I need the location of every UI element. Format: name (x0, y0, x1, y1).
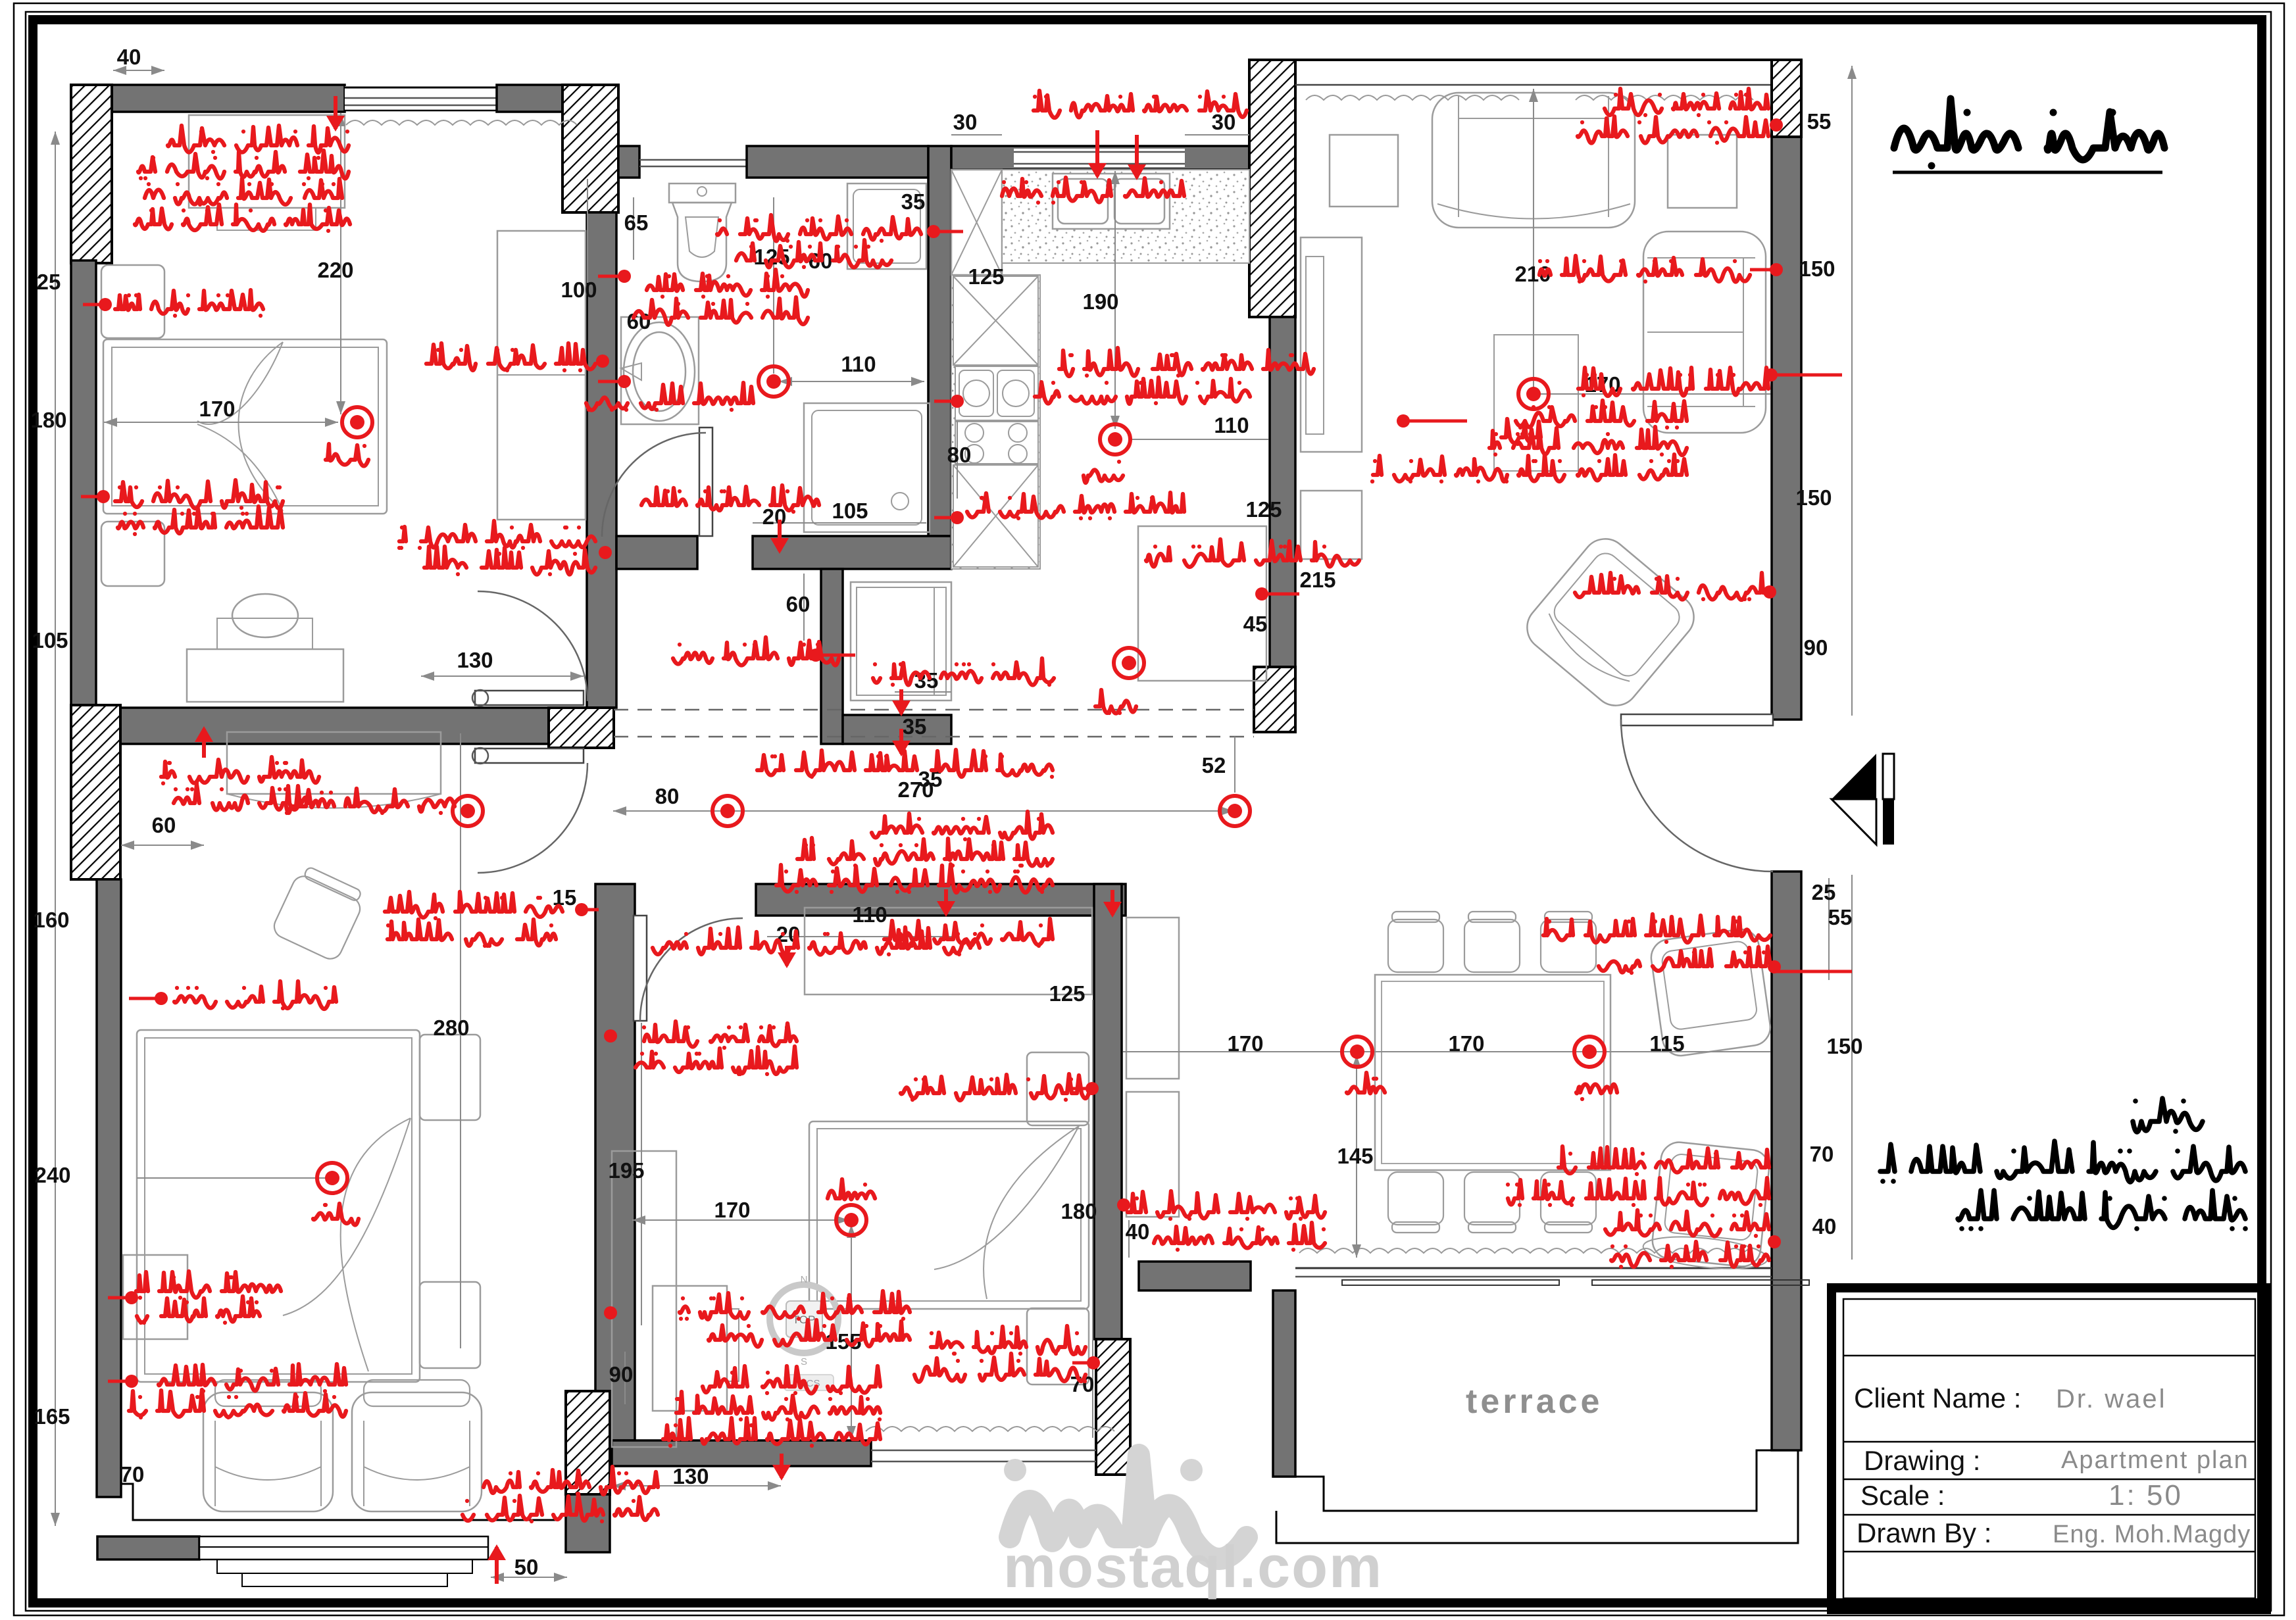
svg-text:80: 80 (655, 784, 680, 808)
svg-text:25: 25 (37, 270, 61, 294)
svg-text:40: 40 (117, 45, 141, 69)
svg-text:60: 60 (152, 813, 176, 837)
svg-text:195: 195 (608, 1158, 644, 1183)
svg-text:80: 80 (947, 443, 972, 467)
svg-text:110: 110 (841, 352, 876, 376)
svg-text:165: 165 (34, 1404, 70, 1429)
svg-text:50: 50 (514, 1555, 539, 1579)
svg-text:70: 70 (1810, 1142, 1834, 1166)
svg-text:25: 25 (1812, 880, 1836, 904)
svg-text:105: 105 (32, 628, 68, 652)
svg-text:170: 170 (1448, 1031, 1484, 1056)
svg-text:mostaql.com: mostaql.com (1003, 1534, 1383, 1600)
svg-text:55: 55 (1828, 905, 1853, 929)
svg-text:30: 30 (953, 110, 978, 134)
svg-text:55: 55 (1807, 109, 1832, 134)
svg-text:35: 35 (901, 189, 926, 214)
svg-text:270: 270 (897, 777, 934, 802)
svg-text:100: 100 (561, 278, 597, 302)
svg-text:110: 110 (1214, 413, 1249, 437)
svg-text:130: 130 (672, 1464, 709, 1488)
svg-text:130: 130 (457, 648, 493, 672)
svg-text:125: 125 (1245, 497, 1282, 522)
svg-text:20: 20 (762, 504, 787, 529)
svg-text:220: 220 (317, 258, 353, 282)
svg-text:170: 170 (199, 397, 235, 421)
svg-text:115: 115 (1649, 1031, 1684, 1056)
svg-text:125: 125 (968, 264, 1004, 289)
svg-text:1: 50: 1: 50 (2109, 1479, 2183, 1511)
svg-text:170: 170 (1227, 1031, 1263, 1056)
svg-text:150: 150 (1799, 257, 1835, 281)
svg-text:215: 215 (1299, 568, 1335, 592)
svg-text:Dr. wael: Dr. wael (2056, 1385, 2167, 1413)
svg-text:Apartment plan: Apartment plan (2061, 1446, 2249, 1474)
svg-text:110: 110 (852, 902, 887, 927)
svg-text:145: 145 (1337, 1144, 1373, 1168)
svg-text:180: 180 (30, 408, 66, 432)
svg-text:30: 30 (1212, 110, 1236, 134)
svg-text:35: 35 (903, 714, 927, 739)
svg-text:Client Name :: Client Name : (1854, 1383, 2021, 1413)
svg-text:S: S (801, 1356, 807, 1367)
svg-text:40: 40 (1126, 1219, 1150, 1244)
svg-text:terrace: terrace (1466, 1383, 1603, 1421)
svg-text:Drawing :: Drawing : (1864, 1445, 1980, 1476)
svg-text:150: 150 (1826, 1034, 1862, 1058)
svg-text:TOP: TOP (793, 1313, 816, 1326)
svg-text:160: 160 (33, 908, 69, 932)
svg-text:240: 240 (34, 1163, 70, 1187)
svg-text:180: 180 (1061, 1199, 1097, 1223)
svg-text:40: 40 (1812, 1214, 1837, 1239)
svg-text:Drawn By :: Drawn By : (1857, 1517, 1991, 1548)
svg-text:70: 70 (1070, 1372, 1095, 1396)
svg-text:70: 70 (120, 1462, 145, 1486)
svg-text:65: 65 (624, 210, 649, 235)
svg-text:Eng. Moh.Magdy: Eng. Moh.Magdy (2053, 1521, 2251, 1548)
svg-text:150: 150 (1795, 485, 1832, 510)
svg-text:Scale :: Scale : (1860, 1480, 1945, 1511)
svg-text:52: 52 (1202, 753, 1226, 777)
svg-text:90: 90 (609, 1362, 634, 1387)
svg-text:105: 105 (832, 499, 868, 523)
svg-text:280: 280 (433, 1016, 469, 1040)
svg-text:125: 125 (1049, 981, 1085, 1006)
svg-text:170: 170 (714, 1198, 750, 1222)
svg-text:90: 90 (1804, 635, 1828, 660)
svg-text:N: N (801, 1274, 808, 1285)
svg-text:60: 60 (786, 592, 811, 616)
svg-text:190: 190 (1082, 289, 1118, 314)
svg-text:45: 45 (1243, 612, 1268, 636)
